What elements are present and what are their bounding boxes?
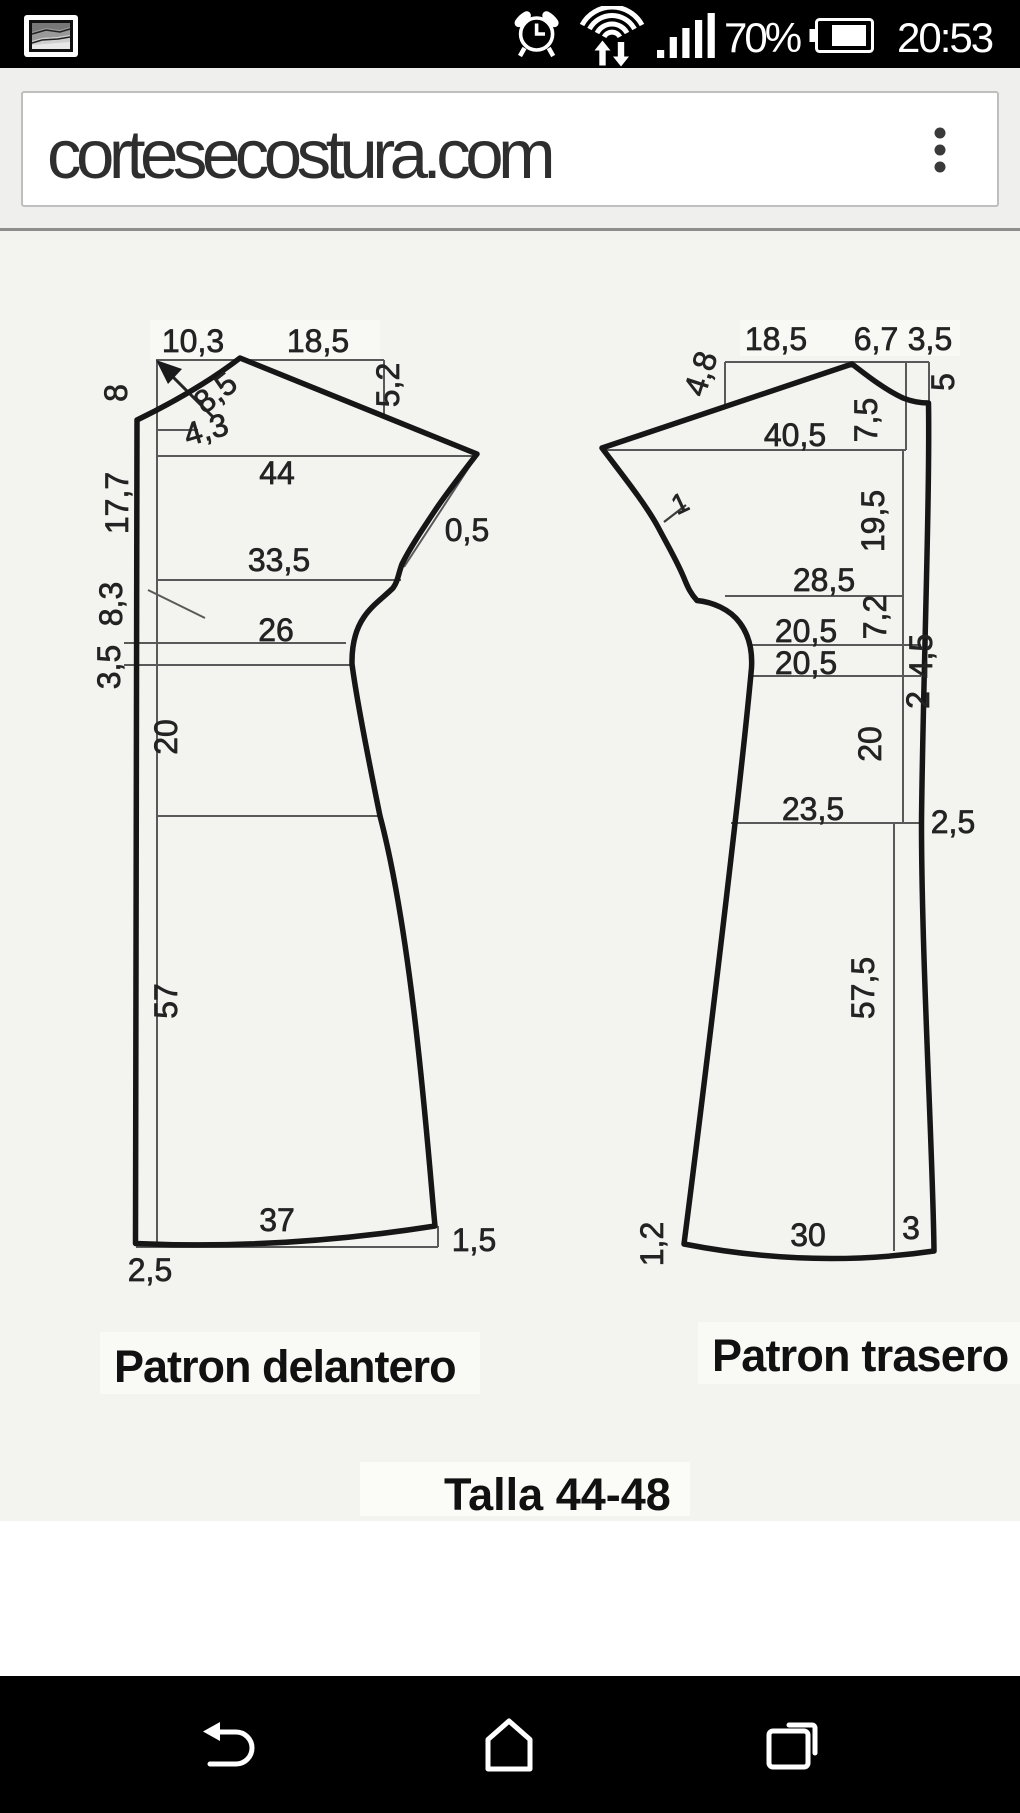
svg-text:7,5: 7,5 [848,398,884,442]
svg-text:20,5: 20,5 [775,645,837,681]
svg-text:1,2: 1,2 [634,1222,670,1266]
svg-text:Patron trasero: Patron trasero [712,1330,1008,1381]
svg-text:23,5: 23,5 [782,791,844,827]
svg-text:2,5: 2,5 [931,804,975,840]
svg-text:20: 20 [852,726,888,762]
svg-text:0,5: 0,5 [445,512,489,548]
svg-text:19,5: 19,5 [855,490,891,552]
svg-text:5: 5 [925,373,961,391]
svg-text:30: 30 [790,1217,826,1253]
svg-text:Patron delantero: Patron delantero [114,1341,456,1392]
svg-text:4,8: 4,8 [677,347,725,400]
svg-text:1,5: 1,5 [452,1222,496,1258]
svg-text:57: 57 [148,983,184,1019]
svg-text:20: 20 [148,719,184,755]
svg-text:1: 1 [666,486,693,521]
svg-text:20,5: 20,5 [775,613,837,649]
svg-text:3,5: 3,5 [91,645,127,689]
svg-text:Talla 44-48: Talla 44-48 [444,1469,671,1520]
svg-text:5,2: 5,2 [370,363,406,407]
svg-text:3,5: 3,5 [908,321,952,357]
svg-text:44: 44 [259,455,295,491]
svg-text:6,7: 6,7 [854,321,898,357]
svg-text:33,5: 33,5 [248,542,310,578]
svg-text:57,5: 57,5 [845,957,881,1019]
svg-text:37: 37 [259,1202,295,1238]
svg-text:18,5: 18,5 [745,321,807,357]
svg-text:17,7: 17,7 [99,472,135,534]
svg-text:8: 8 [98,384,134,402]
svg-text:40,5: 40,5 [764,417,826,453]
svg-text:18,5: 18,5 [287,323,349,359]
svg-text:2: 2 [900,691,936,709]
svg-text:7,2: 7,2 [857,595,893,639]
svg-text:10,3: 10,3 [162,323,224,359]
svg-text:3: 3 [902,1210,920,1246]
svg-text:8,3: 8,3 [93,582,129,626]
svg-text:28,5: 28,5 [793,562,855,598]
svg-text:4,5: 4,5 [903,634,939,678]
svg-text:26: 26 [258,612,294,648]
svg-text:2,5: 2,5 [128,1252,172,1288]
svg-text:4,3: 4,3 [180,406,233,453]
